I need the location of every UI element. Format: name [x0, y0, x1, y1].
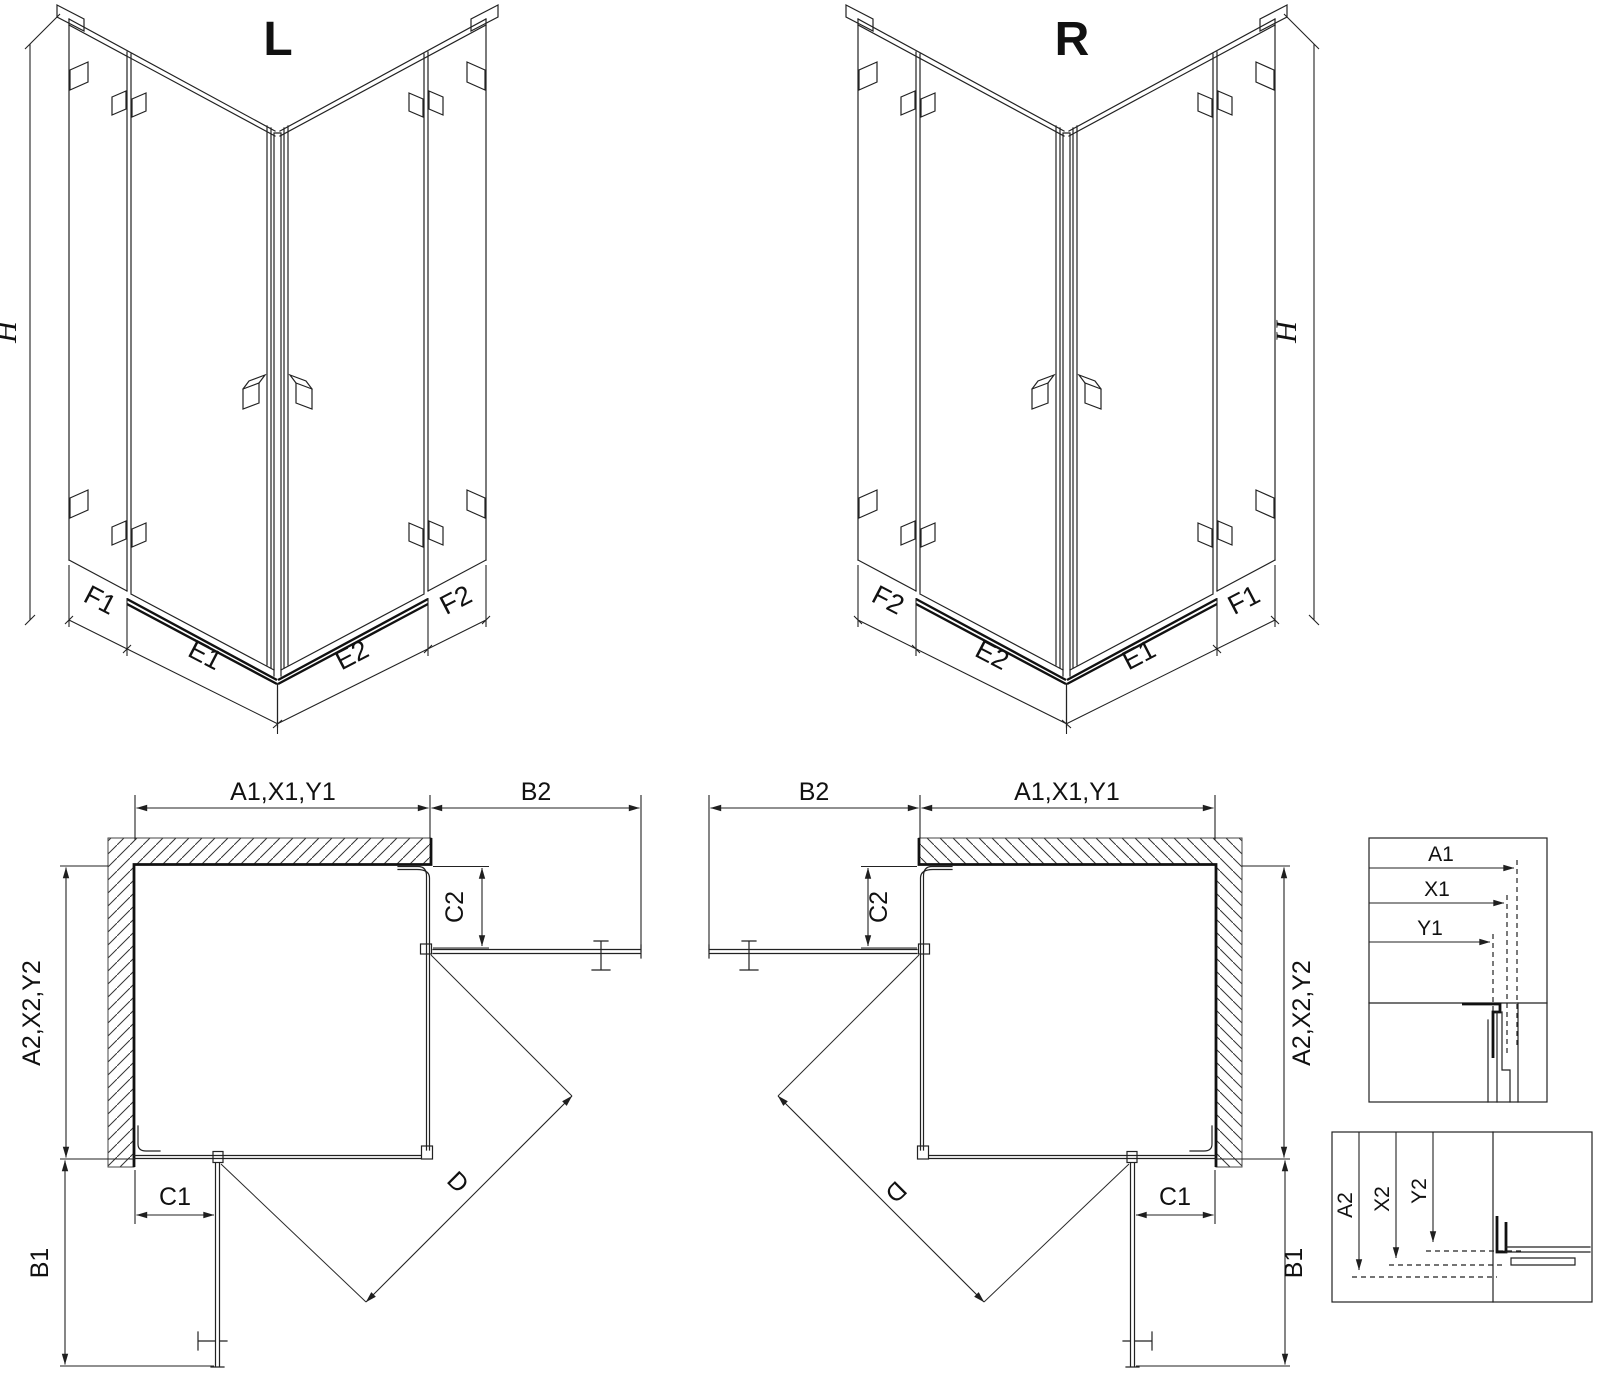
f1-dimension-label: F1	[79, 579, 121, 620]
y2-detail-label: Y2	[1408, 1178, 1431, 1204]
detail-box-horizontal: A1 X1 Y1	[1369, 838, 1547, 1102]
shower-enclosure-technical-drawing: L H F1 E1 E2 F2 R H F2 E2 E1 F1 A1,X1,Y1…	[0, 0, 1600, 1373]
x2-detail-label: X2	[1371, 1186, 1394, 1212]
b1-dimension-label: B1	[1280, 1248, 1308, 1279]
a1-detail-label: A1	[1428, 843, 1454, 866]
c1-dimension-label: C1	[1159, 1183, 1191, 1211]
plan-view-left: A1,X1,Y1 B2 C2 A2,X2,Y2 C1 B1 D	[18, 778, 641, 1367]
c2-dimension-label: C2	[865, 891, 893, 923]
e1-dimension-label: E1	[1117, 634, 1160, 676]
b2-dimension-label: B2	[521, 778, 552, 806]
view-title-left: L	[263, 13, 292, 66]
f2-dimension-label: F2	[435, 579, 477, 620]
iso-view-left: L H F1 E1 E2 F2	[0, 5, 498, 734]
x1-detail-label: X1	[1424, 878, 1450, 901]
a2x2y2-dimension-label: A2,X2,Y2	[18, 960, 46, 1066]
y1-detail-label: Y1	[1417, 917, 1443, 940]
h-dimension-label: H	[0, 319, 23, 344]
plan-view-right: B2 A1,X1,Y1 C2 A2,X2,Y2 C1 B1 D	[709, 778, 1316, 1367]
drawing-canvas: L H F1 E1 E2 F2 R H F2 E2 E1 F1 A1,X1,Y1…	[0, 0, 1600, 1373]
a1x1y1-dimension-label: A1,X1,Y1	[1014, 778, 1120, 806]
a2x2y2-dimension-label: A2,X2,Y2	[1288, 960, 1316, 1066]
profile-section	[1497, 1216, 1506, 1252]
d-dimension-label: D	[441, 1166, 474, 1199]
a2-detail-label: A2	[1334, 1192, 1357, 1218]
e1-dimension-label: E1	[184, 634, 227, 676]
d-dimension-label: D	[879, 1175, 912, 1208]
iso-view-right: R H F2 E2 E1 F1	[846, 5, 1319, 734]
a1x1y1-dimension-label: A1,X1,Y1	[230, 778, 336, 806]
view-title-right: R	[1055, 13, 1090, 66]
profile-section	[1462, 1004, 1500, 1058]
c2-dimension-label: C2	[441, 891, 469, 923]
f2-dimension-label: F2	[867, 579, 909, 620]
b1-dimension-label: B1	[26, 1248, 54, 1279]
f1-dimension-label: F1	[1223, 579, 1265, 620]
b2-dimension-label: B2	[799, 778, 830, 806]
detail-box-vertical: A2 X2 Y2	[1332, 1132, 1592, 1302]
h-dimension-label: H	[1270, 319, 1303, 344]
c1-dimension-label: C1	[159, 1183, 191, 1211]
